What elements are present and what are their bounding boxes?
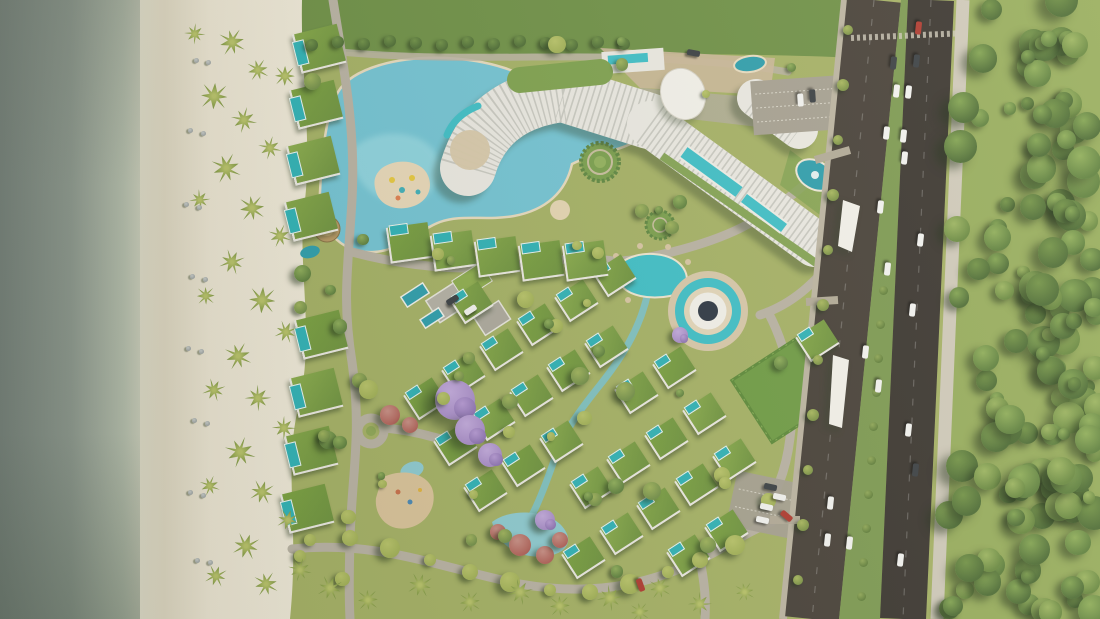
tree <box>948 92 979 123</box>
tree <box>719 477 731 489</box>
tree <box>616 58 628 70</box>
tree <box>956 581 974 599</box>
tree <box>793 575 803 585</box>
villa <box>644 418 686 458</box>
tree <box>1041 424 1057 440</box>
tree <box>952 486 981 515</box>
garden-palm <box>549 595 570 616</box>
beach-umbrella <box>188 490 193 495</box>
car <box>763 483 777 492</box>
villa <box>501 446 543 486</box>
tree <box>1027 153 1056 182</box>
tree <box>1061 576 1084 599</box>
beach-palm <box>222 434 258 470</box>
car <box>912 54 919 68</box>
tree <box>592 36 604 48</box>
beach-palm <box>201 377 228 404</box>
tree <box>1004 102 1016 114</box>
beach-palm <box>209 151 243 185</box>
garden-palm <box>407 572 434 599</box>
car <box>861 345 868 359</box>
car <box>845 536 852 550</box>
tree <box>1065 530 1091 556</box>
tree <box>946 450 978 482</box>
tree <box>837 79 849 91</box>
car <box>759 503 773 512</box>
beach-palm <box>248 286 276 314</box>
tree <box>665 221 679 235</box>
villa <box>539 421 581 461</box>
tree <box>335 572 349 586</box>
beach-umbrella <box>188 128 193 133</box>
tree <box>864 490 873 499</box>
tree <box>995 281 1014 300</box>
beach-umbrella <box>201 131 206 136</box>
beach-palm <box>238 194 265 221</box>
tree <box>874 354 883 363</box>
tree <box>833 135 843 145</box>
tree <box>509 534 531 556</box>
car <box>904 85 911 99</box>
car <box>779 510 793 523</box>
tree <box>469 428 486 445</box>
beach-palm <box>253 571 280 598</box>
tree <box>1007 509 1024 526</box>
beach-palm <box>204 564 229 589</box>
tree <box>969 44 997 72</box>
tree <box>402 417 418 433</box>
tree <box>797 519 809 531</box>
tree <box>676 389 684 397</box>
tree <box>876 320 885 329</box>
tree <box>341 510 356 525</box>
tree <box>342 530 358 546</box>
car <box>899 129 906 143</box>
tree <box>357 234 369 246</box>
tree <box>869 422 878 431</box>
tree <box>358 38 370 50</box>
tree <box>294 265 311 282</box>
tree <box>536 546 554 564</box>
tree <box>514 35 526 47</box>
tree <box>437 392 450 405</box>
car <box>896 553 903 567</box>
tree <box>447 256 455 264</box>
villa <box>474 236 518 275</box>
villa <box>652 348 694 388</box>
tree <box>1033 105 1052 124</box>
tree <box>1057 130 1076 149</box>
beach-umbrella <box>205 421 210 426</box>
tree <box>967 258 990 281</box>
tree <box>955 554 983 582</box>
tree <box>803 465 813 475</box>
tree <box>944 130 977 163</box>
beach-palm <box>229 105 259 135</box>
beach-palm <box>246 58 270 82</box>
tree <box>1084 298 1100 318</box>
tree <box>380 405 400 425</box>
beach-palm <box>183 22 208 47</box>
beach-umbrella <box>199 349 204 354</box>
beach-umbrella <box>184 202 189 207</box>
tree <box>333 436 347 450</box>
car <box>911 463 918 477</box>
tree <box>306 39 318 51</box>
tree <box>617 37 626 46</box>
tree <box>582 584 598 600</box>
beach-umbrella <box>195 558 200 563</box>
villa <box>674 464 716 504</box>
tree <box>1058 428 1070 440</box>
garden-palm <box>686 590 714 618</box>
tree <box>593 345 605 357</box>
tree <box>984 224 1011 251</box>
tree <box>1080 248 1100 271</box>
tree <box>1041 31 1057 47</box>
tree <box>304 534 316 546</box>
tree <box>548 36 566 54</box>
tree <box>1075 425 1100 454</box>
tree <box>325 285 335 295</box>
tree <box>608 478 624 494</box>
tree <box>1024 60 1051 87</box>
tree <box>1065 206 1080 221</box>
villa <box>289 368 341 416</box>
tree <box>862 524 871 533</box>
tree <box>700 537 716 553</box>
villa <box>682 394 724 434</box>
villa <box>292 24 344 72</box>
garden-palm <box>459 591 481 613</box>
tree <box>332 36 344 48</box>
tree <box>488 38 500 50</box>
tree <box>823 245 833 255</box>
tree <box>813 355 823 365</box>
car <box>908 303 915 317</box>
tree <box>943 596 963 616</box>
tree <box>635 204 649 218</box>
tree <box>502 394 517 409</box>
beach-umbrella <box>190 274 195 279</box>
villa <box>386 222 430 261</box>
tree <box>817 299 829 311</box>
car <box>874 379 881 393</box>
tree <box>949 287 970 308</box>
villa <box>284 192 336 240</box>
tree <box>577 411 592 426</box>
tree <box>1020 194 1046 220</box>
villa <box>294 310 346 358</box>
tree <box>432 248 444 260</box>
car <box>876 200 883 214</box>
car <box>892 84 899 98</box>
tree <box>807 409 819 421</box>
tree <box>879 286 888 295</box>
garden-palm <box>734 581 755 602</box>
villa <box>286 136 338 184</box>
tree <box>572 241 581 250</box>
tree <box>380 538 400 558</box>
tree <box>1047 457 1075 485</box>
tree <box>944 216 970 242</box>
tree <box>359 380 378 399</box>
generated-scenery <box>0 0 1100 619</box>
tree <box>462 36 474 48</box>
tree <box>1039 600 1062 619</box>
beach-umbrella <box>192 418 197 423</box>
beach-umbrella <box>206 60 211 65</box>
tree <box>566 39 578 51</box>
car <box>823 533 830 547</box>
car <box>826 496 833 510</box>
tree <box>1067 146 1100 179</box>
car <box>883 262 890 276</box>
tree <box>976 370 997 391</box>
beach-palm <box>248 478 275 505</box>
tree <box>1026 273 1059 306</box>
tree <box>611 565 623 577</box>
beach-umbrella <box>203 277 208 282</box>
beach-palm <box>275 66 295 86</box>
tree <box>294 301 307 314</box>
car <box>916 233 923 247</box>
tree <box>655 206 663 214</box>
beach-palm <box>200 82 228 110</box>
tree <box>378 472 386 480</box>
car <box>914 21 921 35</box>
tree <box>552 532 568 548</box>
tree <box>1066 313 1082 329</box>
car <box>797 93 804 106</box>
tree <box>843 25 853 35</box>
beach-palm <box>242 382 273 413</box>
tree <box>424 554 436 566</box>
tree <box>1045 0 1078 17</box>
tree <box>384 35 396 47</box>
tree <box>643 482 661 500</box>
villa <box>449 283 491 323</box>
tree <box>1073 112 1100 140</box>
tree <box>827 189 839 201</box>
garden-palm <box>648 576 671 599</box>
tree <box>702 90 710 98</box>
beach-palm <box>197 287 215 305</box>
beach-umbrella <box>201 493 206 498</box>
garden-palm <box>357 589 378 610</box>
tree <box>680 334 689 343</box>
tree <box>571 367 589 385</box>
villa <box>584 326 626 366</box>
tree <box>1000 197 1015 212</box>
tree <box>1019 534 1050 565</box>
car <box>686 49 700 57</box>
tree <box>867 456 876 465</box>
tree <box>489 453 502 466</box>
beach-palm <box>217 247 246 276</box>
tree <box>995 405 1024 434</box>
beach-umbrella <box>208 560 213 565</box>
tree <box>545 519 556 530</box>
tree <box>462 564 478 580</box>
garden-palm <box>630 602 650 619</box>
beach-palm <box>223 341 253 371</box>
tree <box>463 352 474 363</box>
beach-palm <box>217 27 246 56</box>
tree <box>1004 329 1028 353</box>
tree <box>787 63 796 72</box>
tree <box>517 291 534 308</box>
car <box>889 56 896 70</box>
tree <box>974 463 1001 490</box>
tree <box>973 345 1000 372</box>
car <box>882 126 889 140</box>
tree <box>673 195 687 209</box>
beach-umbrella <box>197 205 202 210</box>
beach-palm <box>231 531 261 561</box>
car <box>904 423 911 437</box>
tree <box>436 39 448 51</box>
tree <box>547 432 555 440</box>
tree <box>987 253 1009 275</box>
tree <box>294 550 306 562</box>
tree <box>1038 237 1068 267</box>
tree <box>662 566 674 578</box>
tree <box>544 319 554 329</box>
tree <box>584 492 593 501</box>
tree <box>1068 377 1081 390</box>
tree <box>981 0 1002 20</box>
villa <box>599 513 641 553</box>
tree <box>774 356 788 370</box>
tree <box>857 592 866 601</box>
tree <box>333 319 347 333</box>
villa <box>518 240 562 279</box>
beach-palm <box>256 134 283 161</box>
tree <box>410 37 422 49</box>
tree <box>725 535 745 555</box>
tree <box>1021 97 1034 110</box>
villa <box>607 443 649 483</box>
tree <box>1062 32 1088 58</box>
car <box>809 89 816 102</box>
villa <box>561 538 603 578</box>
tree <box>692 552 708 568</box>
tree <box>378 480 387 489</box>
tree <box>859 558 868 567</box>
tree <box>466 534 478 546</box>
tree <box>583 299 591 307</box>
beach-umbrella <box>194 58 199 63</box>
tree <box>544 584 556 596</box>
tree <box>1083 491 1096 504</box>
car <box>900 151 907 165</box>
tree <box>1036 347 1050 361</box>
resort-aerial-rendering <box>0 0 1100 619</box>
beach-umbrella <box>186 346 191 351</box>
villa <box>479 329 521 369</box>
tree <box>503 426 515 438</box>
car <box>755 516 769 525</box>
